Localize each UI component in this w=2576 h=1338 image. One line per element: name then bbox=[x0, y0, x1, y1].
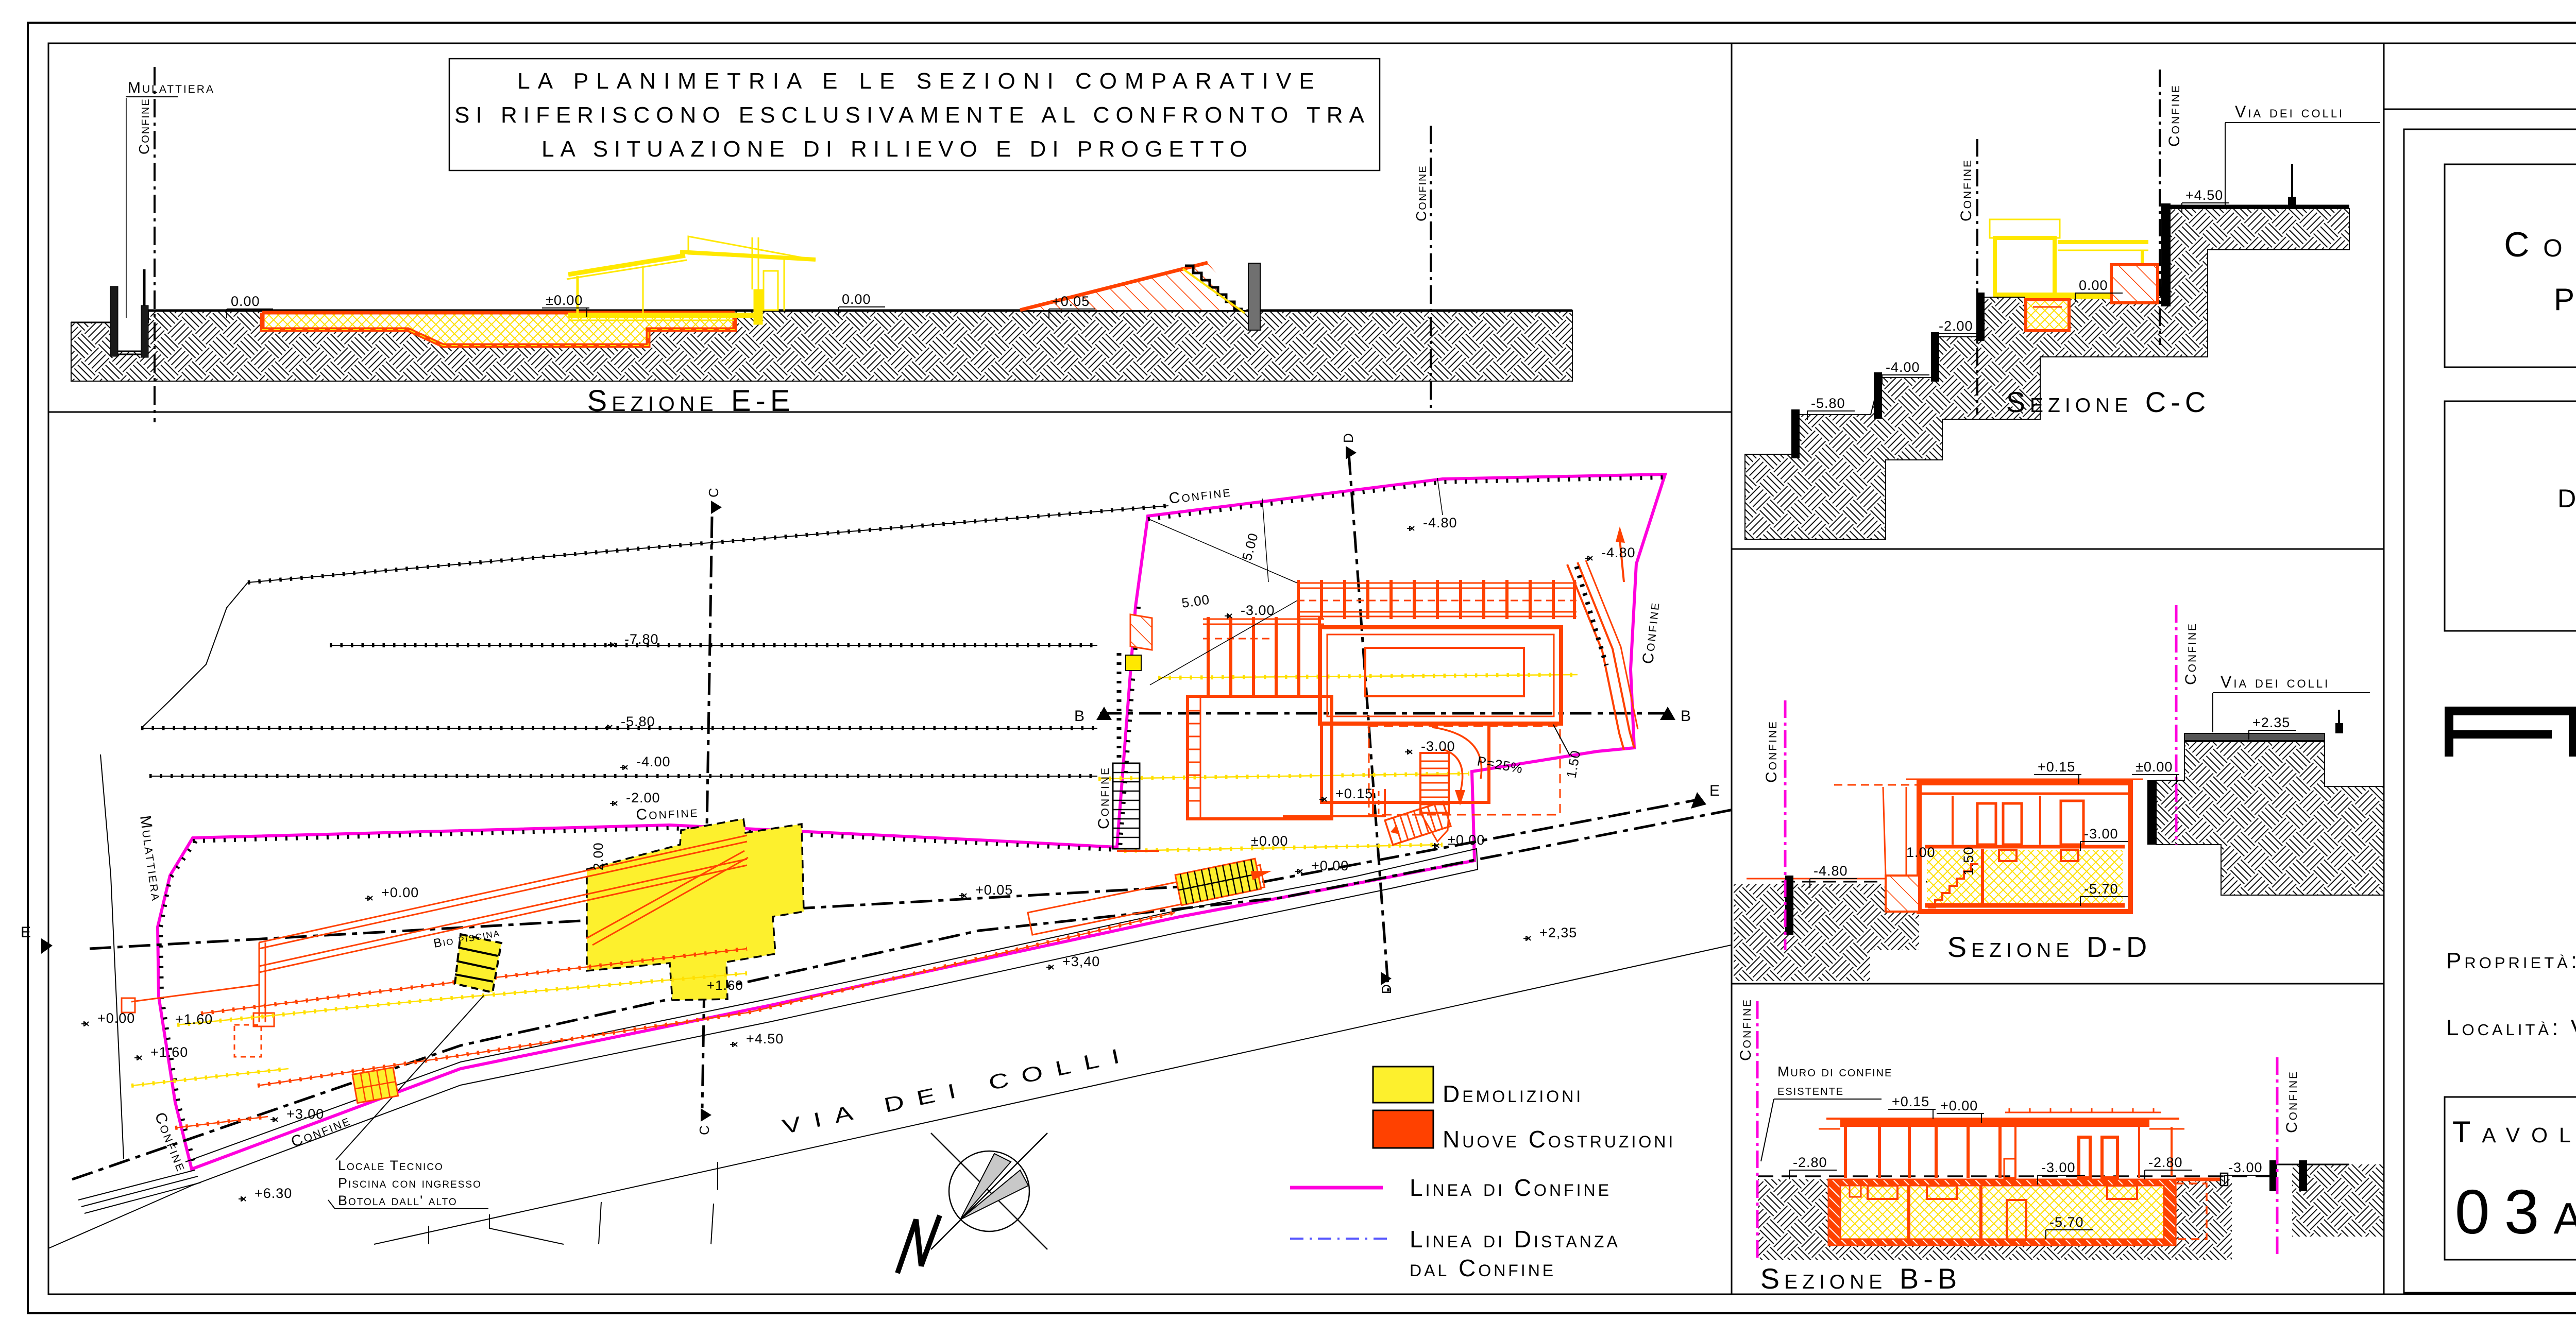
svg-text:Botola dall' alto: Botola dall' alto bbox=[338, 1193, 457, 1208]
svg-text:-3.00: -3.00 bbox=[1241, 603, 1275, 618]
svg-text:Tavola: Tavola bbox=[2452, 1116, 2576, 1149]
svg-text:D: D bbox=[1379, 984, 1394, 994]
svg-text:+4.50: +4.50 bbox=[746, 1031, 784, 1047]
svg-text:Sezione D-D: Sezione D-D bbox=[1947, 931, 2152, 963]
svg-text:-4.80: -4.80 bbox=[1814, 863, 1848, 879]
svg-text:-3.00: -3.00 bbox=[1421, 739, 1455, 754]
svg-text:-5.70: -5.70 bbox=[2084, 881, 2119, 897]
svg-text:Confine: Confine bbox=[1958, 159, 1975, 221]
svg-text:VIA DEI COLLI: VIA DEI COLLI bbox=[781, 1042, 1135, 1139]
svg-text:1.50: 1.50 bbox=[1961, 846, 1976, 876]
svg-text:Sezione B-B: Sezione B-B bbox=[1760, 1262, 1961, 1295]
svg-text:-4.00: -4.00 bbox=[636, 754, 671, 769]
svg-text:+3,40: +3,40 bbox=[1062, 954, 1100, 969]
svg-text:+1.60: +1.60 bbox=[175, 1011, 213, 1027]
svg-text:Linea di Confine: Linea di Confine bbox=[1410, 1174, 1612, 1201]
svg-text:Demolizione e Ricostruzione: Demolizione e Ricostruzione bbox=[2557, 484, 2576, 513]
svg-text:5.00: 5.00 bbox=[1239, 531, 1261, 562]
svg-text:+0.00: +0.00 bbox=[1940, 1098, 1978, 1113]
svg-text:Sezione C-C: Sezione C-C bbox=[2006, 386, 2211, 418]
svg-text:0.00: 0.00 bbox=[842, 291, 871, 307]
svg-text:Via dei colli: Via dei colli bbox=[2235, 102, 2344, 121]
svg-text:-3.00: -3.00 bbox=[2041, 1160, 2076, 1175]
svg-text:+0.15: +0.15 bbox=[2038, 759, 2075, 775]
svg-text:±0.00: ±0.00 bbox=[546, 293, 583, 308]
svg-text:-5.80: -5.80 bbox=[621, 714, 655, 729]
svg-text:0.00: 0.00 bbox=[2079, 278, 2108, 293]
svg-text:Confine: Confine bbox=[2283, 1070, 2300, 1133]
svg-text:dal Confine: dal Confine bbox=[1410, 1255, 1556, 1281]
svg-text:+2.35: +2.35 bbox=[2252, 715, 2290, 730]
svg-text:B: B bbox=[1681, 708, 1691, 725]
svg-text:Confine: Confine bbox=[2166, 84, 2183, 147]
svg-text:+0.00: +0.00 bbox=[97, 1010, 135, 1026]
svg-text:±0.00: ±0.00 bbox=[2136, 759, 2173, 775]
svg-text:+0.05: +0.05 bbox=[975, 882, 1013, 898]
svg-text:+0.15: +0.15 bbox=[1892, 1094, 1929, 1109]
svg-text:Nuove Costruzioni: Nuove Costruzioni bbox=[1443, 1126, 1675, 1153]
svg-text:+0.00: +0.00 bbox=[381, 885, 419, 900]
svg-text:Muro di confine: Muro di confine bbox=[1777, 1063, 1892, 1079]
svg-text:Via dei colli: Via dei colli bbox=[2221, 673, 2330, 691]
svg-text:+2,35: +2,35 bbox=[1539, 925, 1577, 940]
svg-text:Confine: Confine bbox=[2182, 622, 2199, 685]
svg-text:Confine: Confine bbox=[636, 803, 700, 824]
svg-text:esistente: esistente bbox=[1777, 1082, 1844, 1098]
svg-text:-2.00: -2.00 bbox=[626, 790, 660, 805]
svg-text:Confine: Confine bbox=[1095, 766, 1112, 829]
svg-text:-4.80: -4.80 bbox=[1423, 515, 1458, 530]
svg-text:Mulattiera: Mulattiera bbox=[137, 814, 165, 903]
svg-text:-4.00: -4.00 bbox=[1886, 359, 1920, 375]
svg-text:1.50: 1.50 bbox=[1563, 749, 1583, 779]
svg-text:-4.80: -4.80 bbox=[1601, 545, 1636, 560]
svg-text:2.00: 2.00 bbox=[590, 842, 606, 870]
svg-text:Proprietà:: Proprietà: bbox=[2446, 948, 2576, 973]
svg-text:Piscina con ingresso: Piscina con ingresso bbox=[338, 1175, 482, 1191]
svg-text:-7.80: -7.80 bbox=[624, 631, 659, 647]
svg-text:Locale Tecnico: Locale Tecnico bbox=[338, 1158, 444, 1173]
svg-text:+0.05: +0.05 bbox=[1052, 294, 1090, 309]
svg-text:-2.80: -2.80 bbox=[1793, 1155, 1827, 1170]
svg-text:Confine: Confine bbox=[1737, 998, 1754, 1061]
svg-text:+0.15: +0.15 bbox=[1335, 786, 1373, 801]
svg-text:Confine: Confine bbox=[1168, 483, 1232, 507]
svg-text:Confine: Confine bbox=[1763, 720, 1780, 783]
svg-text:±0.00: ±0.00 bbox=[1251, 833, 1288, 849]
svg-text:+0.00: +0.00 bbox=[1311, 858, 1349, 873]
svg-text:E: E bbox=[1709, 782, 1720, 799]
svg-text:Confine: Confine bbox=[1413, 165, 1429, 221]
svg-text:Sezione E-E: Sezione E-E bbox=[587, 384, 794, 418]
svg-text:Mulattiera: Mulattiera bbox=[128, 79, 215, 96]
svg-text:Demolizioni: Demolizioni bbox=[1443, 1080, 1583, 1107]
svg-text:Località: Via del Beodo Snc: Località: Via del Beodo Snc bbox=[2446, 1015, 2576, 1040]
svg-text:+4.50: +4.50 bbox=[2185, 187, 2223, 203]
svg-text:D: D bbox=[1341, 433, 1356, 443]
svg-text:P=25%: P=25% bbox=[1476, 753, 1524, 776]
svg-text:-5.70: -5.70 bbox=[2049, 1214, 2084, 1230]
svg-text:SI RIFERISCONO ESCLUSIVAMENTE: SI RIFERISCONO ESCLUSIVAMENTE AL CONFRON… bbox=[454, 102, 1370, 128]
svg-text:B: B bbox=[1074, 708, 1084, 725]
svg-text:-3.00: -3.00 bbox=[2084, 826, 2119, 842]
svg-text:Provincia di Imperia: Provincia di Imperia bbox=[2554, 282, 2576, 317]
svg-text:-2.80: -2.80 bbox=[2148, 1155, 2183, 1170]
svg-text:0.00: 0.00 bbox=[231, 294, 260, 309]
svg-text:C: C bbox=[697, 1125, 712, 1135]
svg-text:-5.80: -5.80 bbox=[1811, 396, 1845, 411]
svg-text:Linea di Distanza: Linea di Distanza bbox=[1410, 1226, 1620, 1253]
svg-text:5.00: 5.00 bbox=[1181, 592, 1211, 611]
svg-text:C: C bbox=[706, 488, 721, 498]
svg-text:-2.00: -2.00 bbox=[1939, 318, 1973, 334]
svg-text:+3.00: +3.00 bbox=[286, 1106, 324, 1122]
svg-text:LA SITUAZIONE DI RILIEVO E DI: LA SITUAZIONE DI RILIEVO E DI PROGETTO bbox=[541, 136, 1253, 162]
svg-text:Comune di Bordighera: Comune di Bordighera bbox=[2504, 225, 2576, 264]
svg-text:+1.60: +1.60 bbox=[150, 1044, 188, 1060]
svg-text:E: E bbox=[21, 924, 31, 941]
svg-text:03a: 03a bbox=[2455, 1177, 2576, 1247]
svg-text:Confine: Confine bbox=[136, 98, 152, 155]
svg-text:+1.60: +1.60 bbox=[707, 977, 743, 993]
svg-text:±0.00: ±0.00 bbox=[1448, 832, 1485, 848]
svg-text:1.00: 1.00 bbox=[1906, 845, 1936, 860]
svg-text:Confine: Confine bbox=[1639, 601, 1663, 665]
svg-text:+6.30: +6.30 bbox=[255, 1186, 292, 1201]
svg-text:LA PLANIMETRIA E LE SEZIONI C: LA PLANIMETRIA E LE SEZIONI COMPARATIVE bbox=[517, 68, 1321, 94]
svg-text:-3.00: -3.00 bbox=[2228, 1160, 2263, 1175]
